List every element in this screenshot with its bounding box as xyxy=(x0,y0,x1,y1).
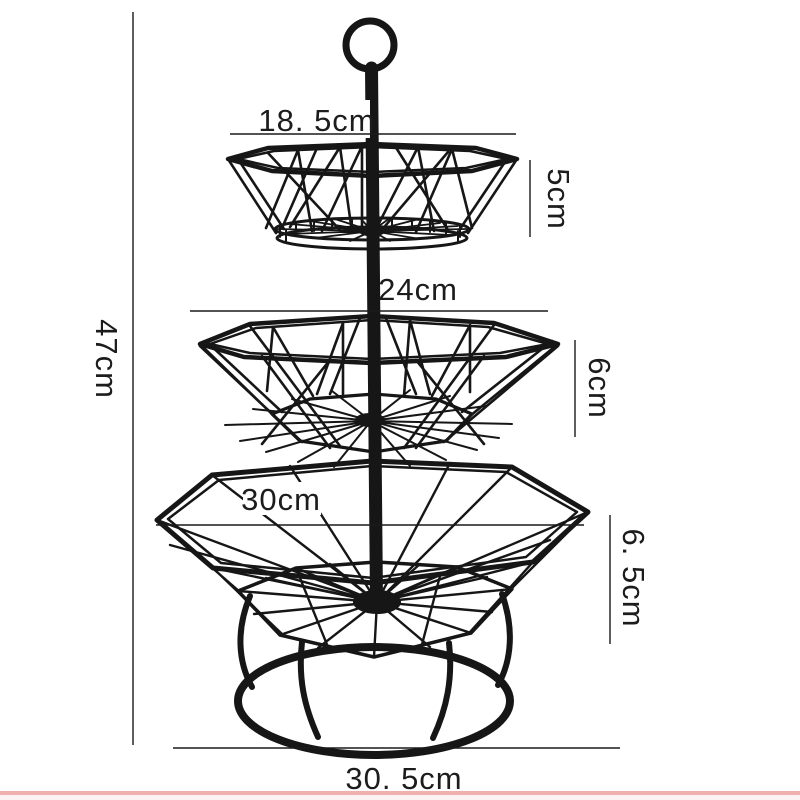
label-top-basket-width: 18. 5cm xyxy=(258,103,375,138)
center-hub xyxy=(353,590,401,614)
label-bottom-basket-height: 6. 5cm xyxy=(616,528,651,627)
product-dimension-diagram: 18. 5cm 5cm 24cm 6cm 30cm 6. 5cm 47cm 30… xyxy=(0,0,800,800)
stripe-line xyxy=(0,791,800,795)
label-middle-basket-height: 6cm xyxy=(582,357,617,419)
label-bottom-basket-width: 30cm xyxy=(241,482,321,517)
wire-basket-drawing: 18. 5cm 5cm 24cm 6cm 30cm 6. 5cm 47cm 30… xyxy=(0,0,800,800)
stripe-faint xyxy=(0,795,800,800)
tier2-collar xyxy=(355,413,385,427)
label-total-height: 47cm xyxy=(89,319,124,399)
label-middle-basket-width: 24cm xyxy=(378,272,458,307)
base-stand xyxy=(238,594,510,755)
label-top-basket-height: 5cm xyxy=(541,168,576,230)
tier1-collar xyxy=(359,226,385,237)
label-base-width: 30. 5cm xyxy=(345,761,462,796)
bottom-edge-stripe xyxy=(0,791,800,800)
